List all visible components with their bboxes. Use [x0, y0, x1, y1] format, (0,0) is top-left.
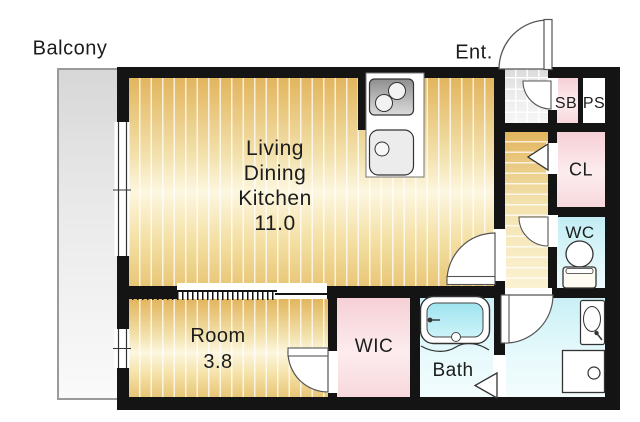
bedroom-label: Room 3.8 [190, 323, 245, 375]
stove-burner-icon [389, 83, 406, 100]
ldk-door-leaf [447, 277, 495, 285]
bedroom-label-name: Room [190, 323, 245, 349]
bathtub-icon [421, 297, 490, 352]
wic-label: WIC [355, 336, 393, 358]
washroom-door-leaf [501, 295, 509, 343]
entrance-door-arc [499, 20, 548, 69]
entrance-label: Ent. [455, 42, 493, 65]
washroom-door-arc [505, 295, 553, 343]
fixtures-layer [0, 0, 640, 422]
bath-label: Bath [432, 360, 473, 382]
ldk-label-line1: Living [238, 136, 312, 161]
sb-door-arc [523, 81, 551, 109]
sb-label: SB [555, 95, 577, 113]
wc-door-arc [519, 217, 548, 246]
vanity-sink-icon [581, 301, 605, 345]
floor-plan: Balcony Ent. Living Dining Kitchen 11.0 … [0, 0, 640, 422]
balcony-label: Balcony [33, 38, 108, 61]
entrance-door-leaf [544, 20, 552, 70]
ldk-label: Living Dining Kitchen 11.0 [238, 136, 312, 236]
closet-label: CL [569, 160, 593, 181]
bath-apron-line [421, 343, 489, 351]
ps-label: PS [583, 95, 605, 113]
wic-door-arc [288, 352, 328, 392]
ldk-label-line3: Kitchen [238, 186, 312, 211]
ldk-area-label: 11.0 [238, 211, 312, 236]
wc-label: WC [565, 223, 594, 243]
ldk-label-line2: Dining [238, 161, 312, 186]
toilet-icon [563, 241, 596, 288]
cl-folding-door-icon [528, 144, 548, 170]
ldk-balcony-window [113, 122, 131, 256]
sink-drain-icon [375, 142, 389, 156]
ldk-door-arc [447, 233, 495, 281]
bedroom-area-label: 3.8 [190, 349, 245, 375]
wic-door-leaf [288, 348, 328, 356]
room-balcony-window [113, 329, 131, 368]
bath-folding-door-icon [475, 373, 497, 398]
washer-pan-icon [563, 351, 605, 393]
stove-burner-icon [376, 95, 393, 112]
kitchen-counter [366, 73, 424, 177]
